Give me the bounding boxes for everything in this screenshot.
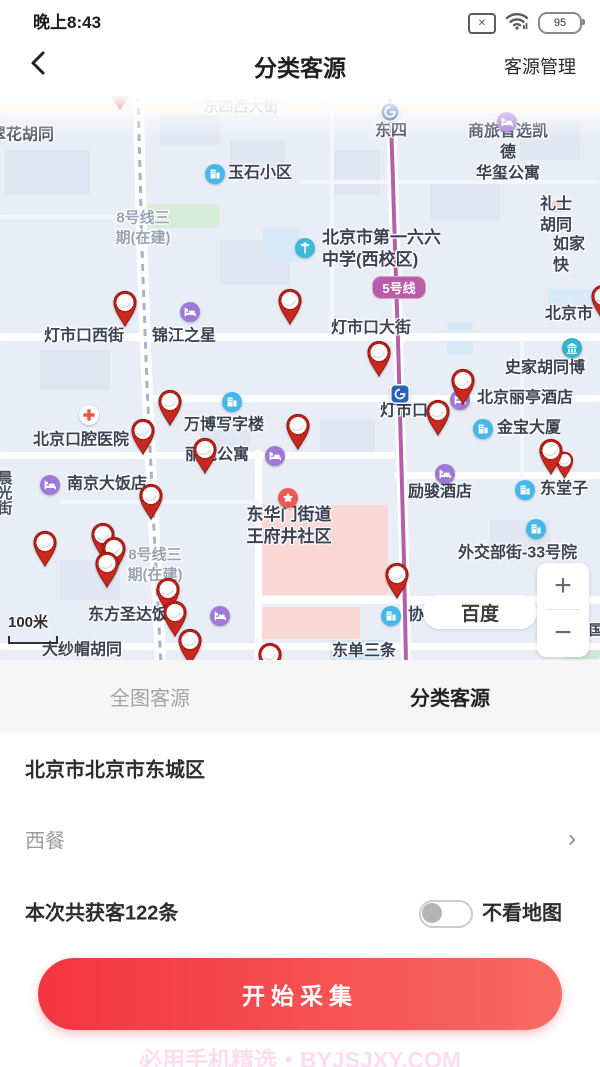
map-label: 北京丽亭酒店 xyxy=(477,389,573,410)
map-pin[interactable] xyxy=(276,288,304,325)
building-icon xyxy=(473,419,493,439)
map-pin[interactable] xyxy=(284,413,312,450)
map-pin[interactable] xyxy=(365,340,393,377)
toggle-knob xyxy=(422,903,442,923)
map-label: 东四西大街 xyxy=(203,97,278,117)
map-label: 万博写字楼 xyxy=(184,416,264,437)
star-icon xyxy=(278,488,298,508)
clock: 晚上8:43 xyxy=(33,8,101,33)
status-bar: 晚上8:43 ✕ 95 xyxy=(0,0,600,36)
map-label: 如家快 xyxy=(553,235,600,277)
hotel-icon xyxy=(265,446,285,466)
app-screen: 晚上8:43 ✕ 95 分类客源 客源管理 xyxy=(0,0,600,1067)
building-icon xyxy=(222,392,242,412)
map-label: 翠花胡同 xyxy=(0,126,54,147)
map-label: 灯市口大街 xyxy=(331,319,411,340)
map-label: 外交部街-33号院 xyxy=(458,544,577,565)
tab-bar: 全图客源 分类客源 xyxy=(0,660,600,734)
map-pin[interactable] xyxy=(589,284,600,321)
hotel-icon xyxy=(210,606,230,626)
metro-line-badge: 5号线 xyxy=(372,276,426,299)
battery-icon: 95 xyxy=(538,12,582,34)
map-pin[interactable] xyxy=(176,628,204,660)
map-label: 晨光街 xyxy=(0,470,14,515)
nav-bar: 分类客源 客源管理 xyxy=(0,36,600,95)
map-pin[interactable] xyxy=(191,437,219,474)
map-pin[interactable] xyxy=(424,399,452,436)
map-label: 灯市口 xyxy=(380,402,428,423)
map-pin[interactable] xyxy=(129,418,157,455)
school-icon xyxy=(295,238,315,258)
chevron-right-icon: › xyxy=(568,825,576,853)
region-row[interactable]: 北京市北京市东城区 xyxy=(0,733,600,804)
hotel-icon xyxy=(40,475,60,495)
map-pin[interactable] xyxy=(449,368,477,405)
metro-station-icon xyxy=(390,384,410,404)
no-sim-icon: ✕ xyxy=(468,13,496,34)
map-label: 金宝大厦 xyxy=(497,419,561,440)
map-label: 东华门街道 王府井社区 xyxy=(247,504,332,548)
map-pin[interactable] xyxy=(537,438,565,475)
metro-station-icon xyxy=(380,102,400,122)
map-label: 玉石小区 xyxy=(228,164,292,185)
map-label: 北京口腔医院 xyxy=(33,431,129,452)
hide-map-toggle[interactable] xyxy=(419,900,473,928)
map-label: 东单三条 xyxy=(332,642,396,660)
map-label: 励骏酒店 xyxy=(408,483,472,504)
map-pin[interactable] xyxy=(256,642,284,660)
tab-all-map-customers[interactable]: 全图客源 xyxy=(0,660,300,733)
hotel-icon xyxy=(435,464,455,484)
map-label: 8号线三 期(在建) xyxy=(116,209,171,248)
map-pin[interactable] xyxy=(111,290,139,327)
manage-customers-button[interactable]: 客源管理 xyxy=(504,53,576,79)
map-label: 锦江之星 xyxy=(152,327,216,348)
building-icon xyxy=(381,606,401,626)
result-row: 本次共获客122条 不看地图 xyxy=(0,874,600,947)
watermark-text: 必用手机精选・BYJSJXY.COM xyxy=(0,1041,600,1067)
map-pin[interactable] xyxy=(156,389,184,426)
map-pin[interactable] xyxy=(106,95,134,110)
map-pin[interactable] xyxy=(31,530,59,567)
status-icons: ✕ 95 xyxy=(468,11,582,35)
building-icon xyxy=(526,519,546,539)
map-label: 国 xyxy=(589,621,600,639)
map-pin[interactable] xyxy=(137,483,165,520)
category-row[interactable]: 西餐 › xyxy=(0,803,600,875)
result-count-text: 本次共获客122条 xyxy=(25,896,178,925)
map-scale-label: 100米 xyxy=(8,611,48,632)
zoom-in-button[interactable]: + xyxy=(537,563,589,609)
building-icon xyxy=(205,164,225,184)
map-label: 协 xyxy=(408,606,424,627)
category-value: 西餐 xyxy=(25,824,65,853)
map-label: 礼士胡同 xyxy=(534,195,578,237)
building-icon xyxy=(515,480,535,500)
hotel-icon xyxy=(180,302,200,322)
region-value: 北京市北京市东城区 xyxy=(25,754,205,783)
map-label: 史家胡同博 xyxy=(505,359,585,380)
map-label: 北京市第一六六 中学(西校区) xyxy=(322,227,441,271)
wifi-icon xyxy=(505,11,529,35)
zoom-out-button[interactable]: − xyxy=(537,610,589,656)
map-label: 南京大饭店 xyxy=(67,475,147,496)
map-label: 东堂子 xyxy=(540,480,588,501)
hospital-icon xyxy=(79,405,99,425)
baidu-attribution: 百度 xyxy=(423,595,537,629)
map-zoom-control: + − xyxy=(537,563,589,657)
map-canvas[interactable]: 5号线 100米 百度 + − 东四西大街翠花胡同东四商旅智选凯德 华玺公寓玉石… xyxy=(0,95,600,660)
map-pin[interactable] xyxy=(383,562,411,599)
map-label: 北京市 xyxy=(545,305,593,326)
tab-category-customers[interactable]: 分类客源 xyxy=(300,660,600,733)
map-label: 灯市口西街 xyxy=(44,327,124,348)
museum-icon xyxy=(562,338,582,358)
start-collect-button[interactable]: 开始采集 xyxy=(38,958,562,1030)
hotel-icon xyxy=(497,112,517,132)
map-scale-bar xyxy=(8,636,58,644)
hide-map-label: 不看地图 xyxy=(482,896,562,925)
map-label: 东四 xyxy=(375,122,407,143)
map-pin[interactable] xyxy=(93,551,121,588)
